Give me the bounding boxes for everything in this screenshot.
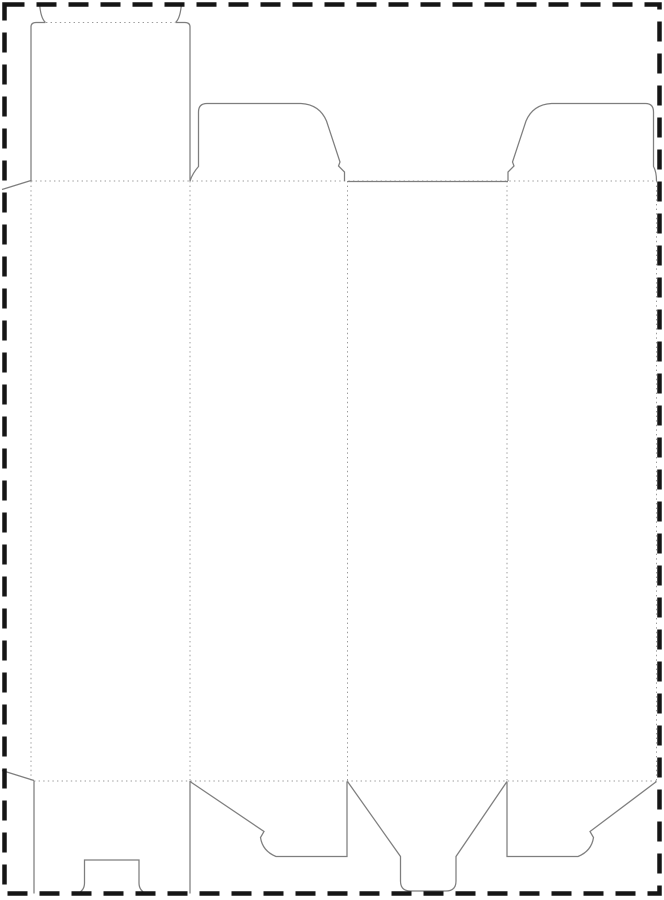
dieline-page: [0, 0, 664, 900]
page-background: [0, 0, 664, 900]
box-dieline-drawing: [0, 0, 664, 900]
